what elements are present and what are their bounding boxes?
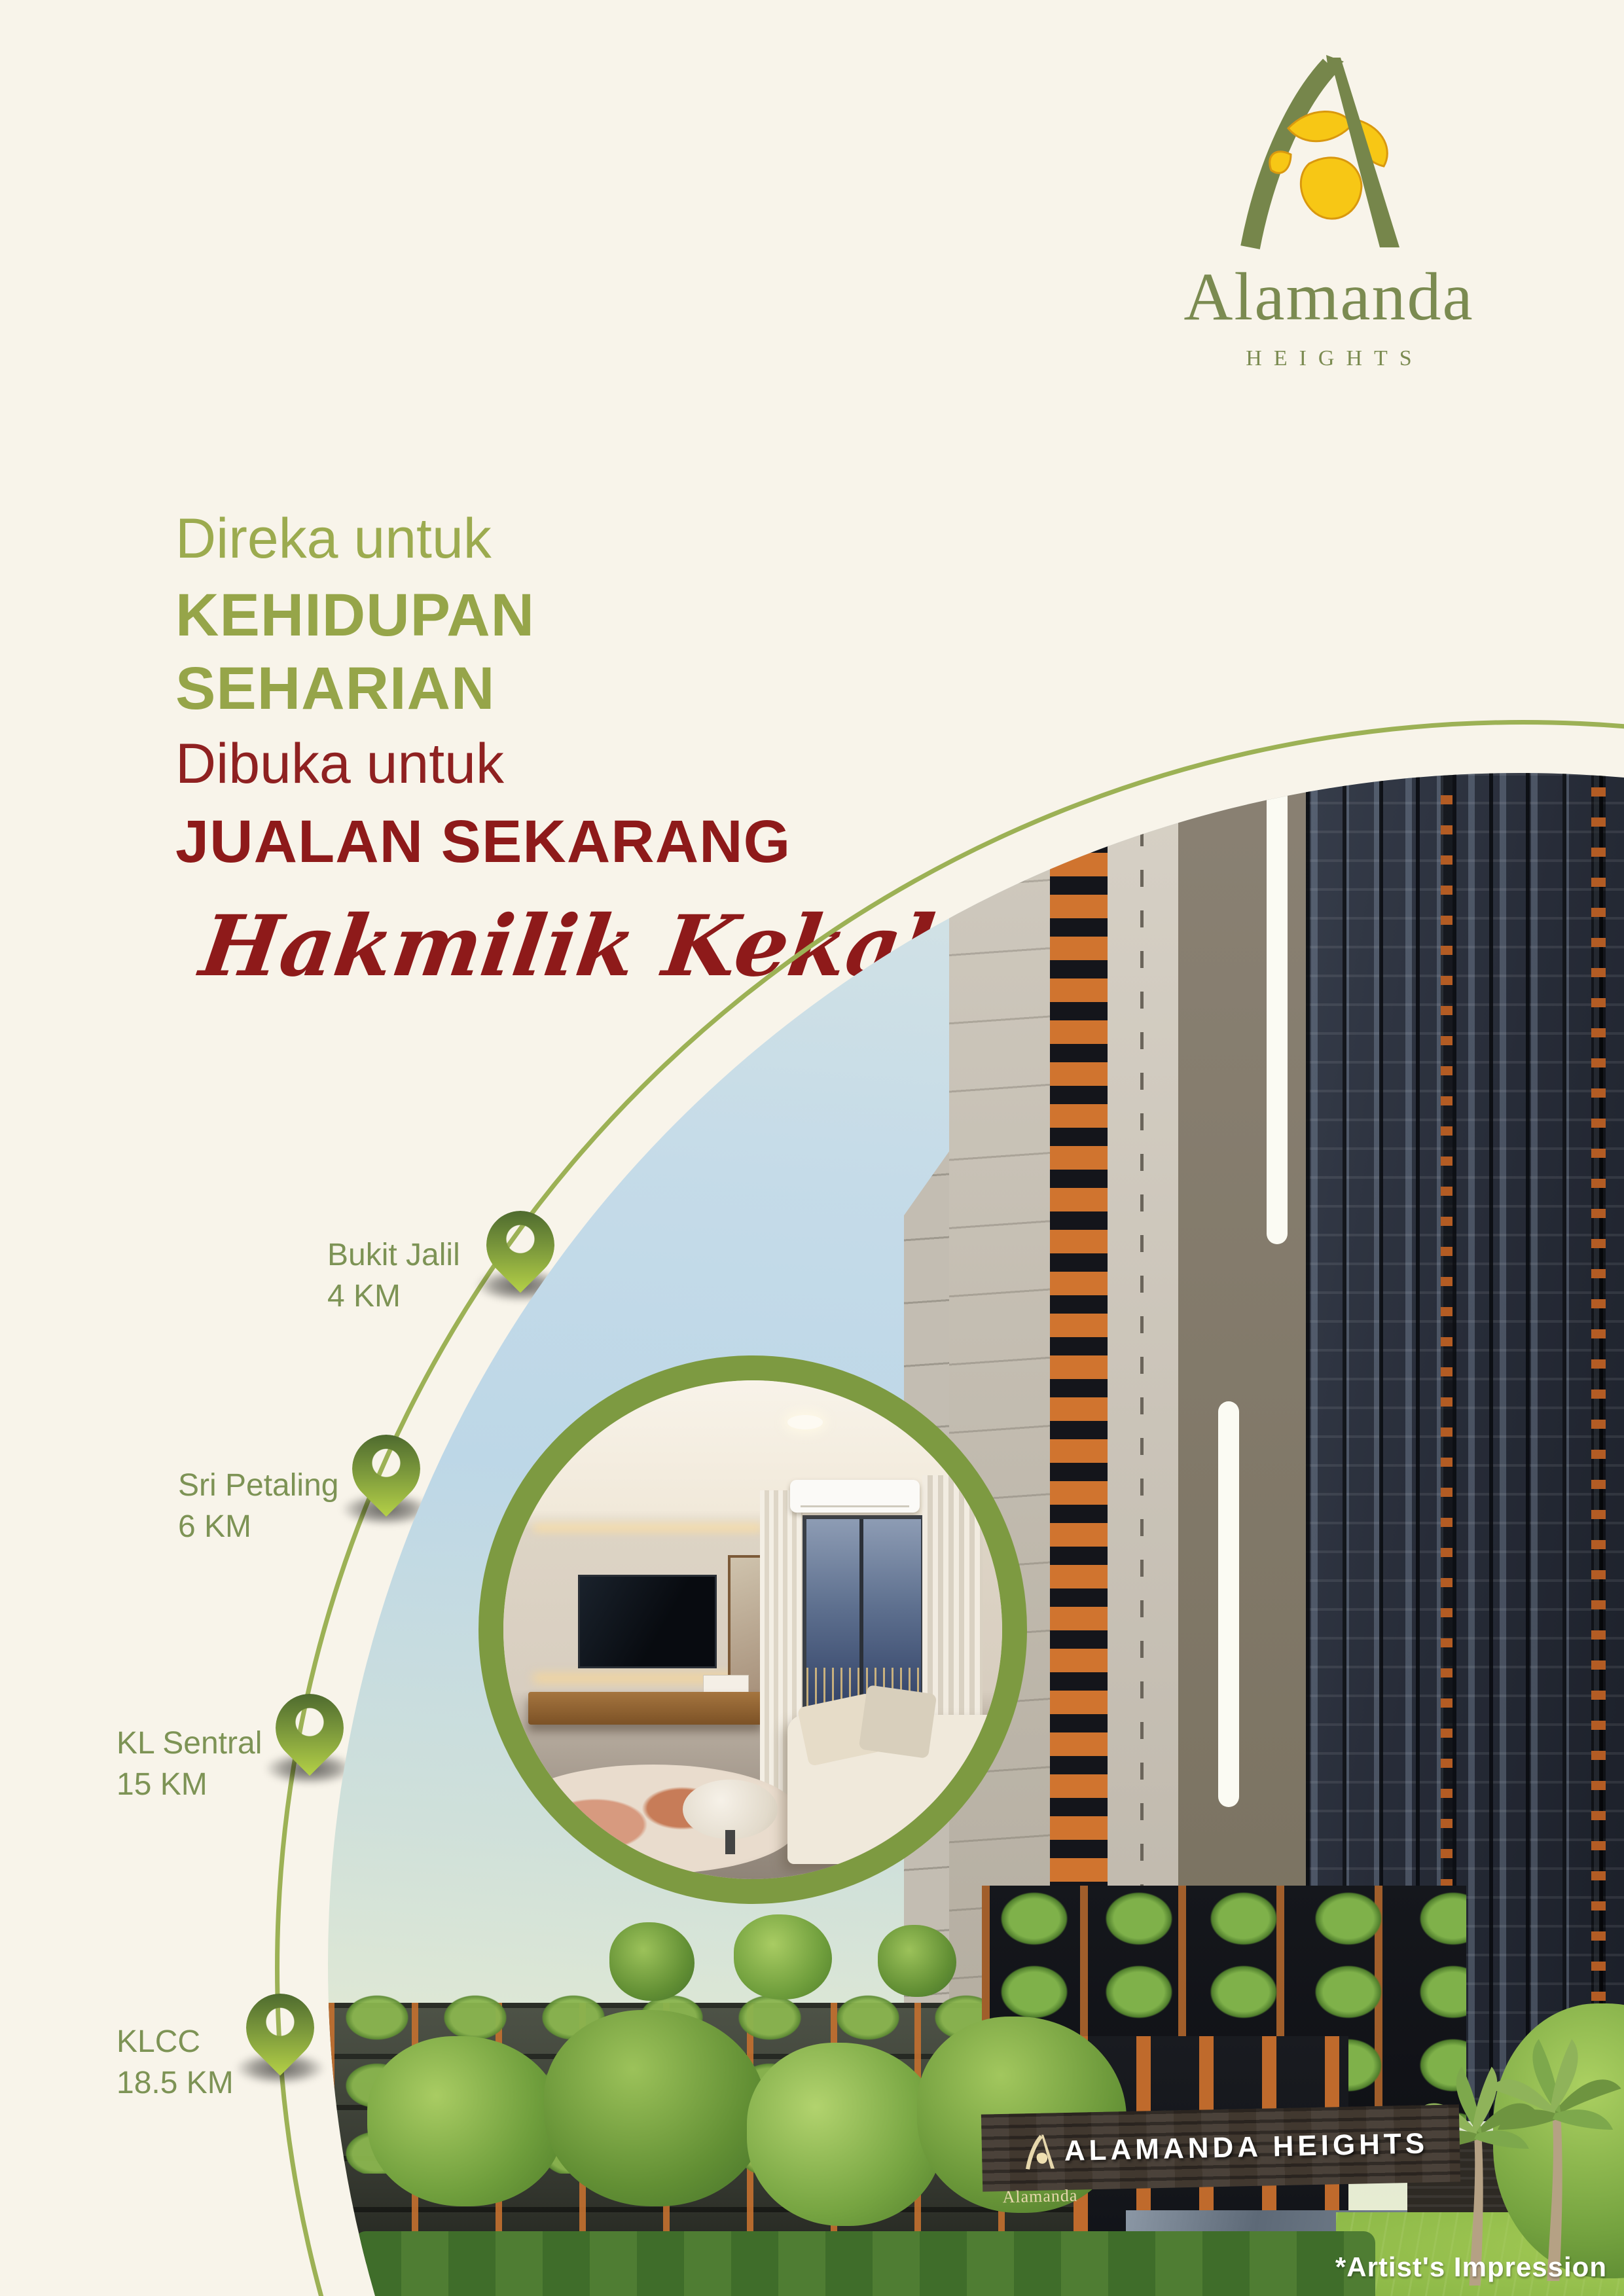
white-light-strip bbox=[1267, 773, 1288, 1244]
location-distance: 18.5 KM bbox=[117, 2062, 234, 2104]
sofa-cushion bbox=[858, 1685, 936, 1759]
white-light-strip bbox=[1218, 1401, 1239, 1807]
interior-photo-circle bbox=[478, 1355, 1027, 1904]
location-name: Sri Petaling bbox=[178, 1465, 338, 1506]
signage-logo-text: Alamanda bbox=[975, 2185, 1106, 2208]
hedge-row bbox=[354, 2231, 1375, 2296]
entrance-signage-wall: ALAMANDA HEIGHTS bbox=[981, 2104, 1460, 2191]
artists-impression-note: *Artist's Impression bbox=[1335, 2251, 1607, 2283]
flyer-page: Alamanda HEIGHTS Direka untuk KEHIDUPAN … bbox=[0, 0, 1624, 2296]
headline-line-2: KEHIDUPAN bbox=[175, 585, 933, 658]
signage-text: ALAMANDA HEIGHTS bbox=[1059, 2126, 1460, 2168]
map-pin-icon bbox=[246, 1994, 314, 2092]
location-item-sri-petaling: Sri Petaling 6 KM bbox=[178, 1465, 338, 1548]
alamanda-flower-icon bbox=[1231, 51, 1427, 254]
tv-screen bbox=[578, 1575, 717, 1668]
location-distance: 6 KM bbox=[178, 1506, 338, 1547]
alamanda-logo: Alamanda HEIGHTS bbox=[1172, 51, 1486, 371]
location-name: KLCC bbox=[117, 2021, 234, 2062]
air-conditioner bbox=[790, 1480, 920, 1513]
wall-mirror bbox=[728, 1555, 763, 1695]
logo-wordmark: Alamanda bbox=[1172, 258, 1486, 336]
headline-line-1: Direka untuk bbox=[175, 511, 933, 585]
signage-logo-icon bbox=[1023, 2128, 1059, 2175]
location-distance: 15 KM bbox=[117, 1764, 262, 1805]
led-cove-light bbox=[533, 1525, 763, 1531]
roof-tree bbox=[609, 1922, 695, 2001]
roof-tree bbox=[734, 1914, 832, 2000]
headline-line-3: SEHARIAN bbox=[175, 658, 933, 736]
location-name: KL Sentral bbox=[117, 1723, 262, 1764]
coffee-table bbox=[683, 1780, 778, 1839]
location-item-klcc: KLCC 18.5 KM bbox=[117, 2021, 234, 2104]
location-item-kl-sentral: KL Sentral 15 KM bbox=[117, 1723, 262, 1806]
logo-tagline: HEIGHTS bbox=[1172, 346, 1486, 371]
tv-console bbox=[528, 1692, 763, 1725]
orange-mullion bbox=[1591, 773, 1606, 2121]
roof-tree bbox=[878, 1925, 956, 1997]
